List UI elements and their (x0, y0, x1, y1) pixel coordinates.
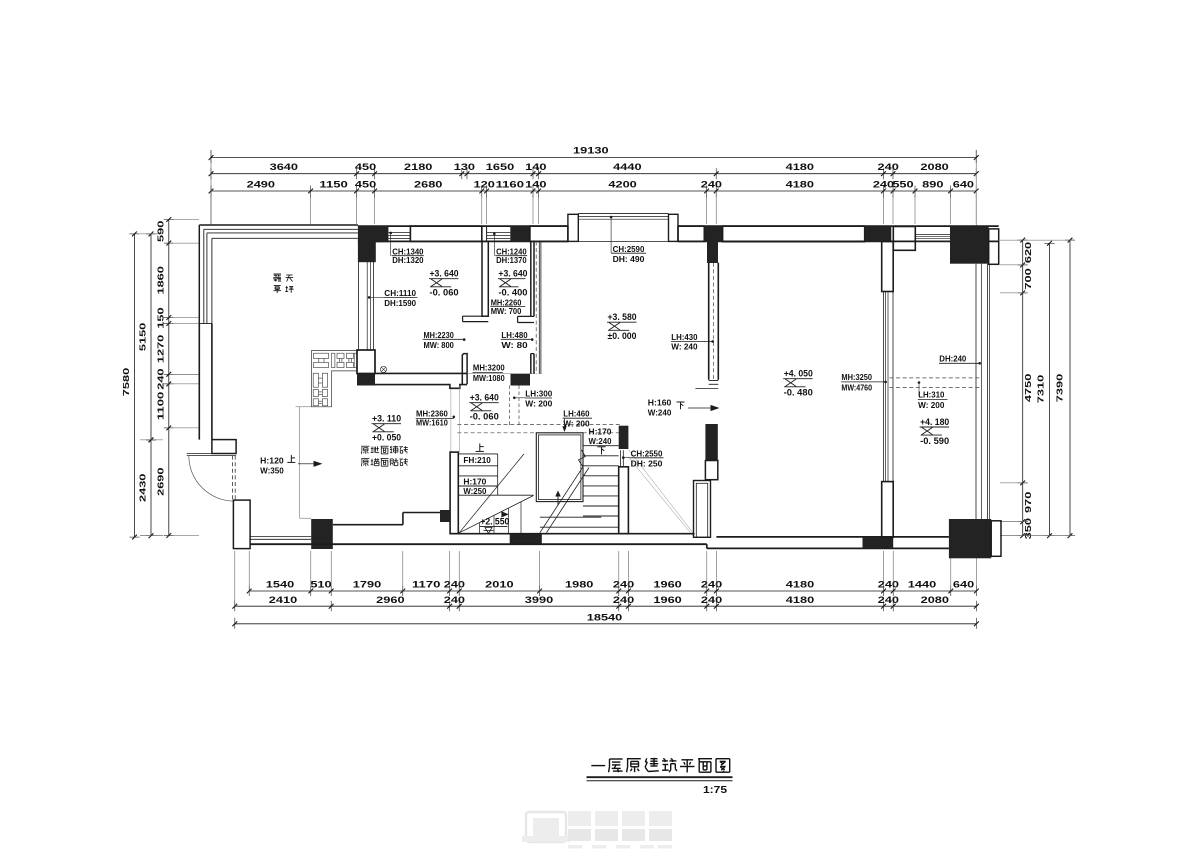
svg-text:18540: 18540 (587, 612, 623, 622)
svg-text:2690: 2690 (155, 467, 165, 496)
svg-text:LH:300: LH:300 (525, 390, 553, 399)
svg-text:640: 640 (953, 180, 974, 190)
svg-text:-0. 480: -0. 480 (784, 388, 813, 398)
svg-text:240: 240 (444, 580, 465, 590)
svg-text:4180: 4180 (786, 595, 814, 605)
svg-text:2080: 2080 (920, 162, 948, 172)
svg-text:2490: 2490 (247, 180, 275, 190)
svg-text:LH:460: LH:460 (563, 410, 590, 419)
svg-text:1170: 1170 (412, 580, 440, 590)
svg-text:2180: 2180 (404, 162, 432, 172)
svg-text:240: 240 (878, 595, 899, 605)
svg-text:+3. 580: +3. 580 (608, 312, 637, 322)
svg-text:130: 130 (454, 162, 475, 172)
svg-text:CH:2590: CH:2590 (613, 245, 645, 254)
svg-text:MH:2230: MH:2230 (424, 331, 455, 340)
svg-text:±0. 000: ±0. 000 (608, 331, 637, 341)
svg-text:450: 450 (355, 180, 376, 190)
svg-text:240: 240 (878, 162, 899, 172)
svg-text:+3. 110: +3. 110 (372, 414, 401, 424)
svg-text:MW: 700: MW: 700 (491, 307, 522, 316)
svg-text:LH:480: LH:480 (501, 331, 528, 340)
svg-text:CH:1340: CH:1340 (392, 248, 424, 257)
svg-text:W:240: W:240 (589, 437, 613, 446)
svg-text:2960: 2960 (376, 595, 404, 605)
svg-text:4440: 4440 (613, 162, 641, 172)
svg-text:DH:1590: DH:1590 (384, 299, 416, 308)
svg-text:1440: 1440 (908, 580, 936, 590)
svg-text:970: 970 (1023, 491, 1033, 513)
svg-text:FH:210: FH:210 (463, 456, 491, 465)
svg-text:+3. 640: +3. 640 (498, 269, 527, 279)
svg-text:-0. 060: -0. 060 (470, 412, 499, 422)
svg-text:2430: 2430 (138, 473, 148, 502)
svg-text:MW: 800: MW: 800 (424, 341, 455, 350)
svg-text:4750: 4750 (1023, 373, 1033, 402)
svg-text:DH:240: DH:240 (939, 355, 967, 364)
svg-text:MH:3200: MH:3200 (473, 364, 505, 373)
svg-text:4180: 4180 (786, 162, 814, 172)
svg-text:1150: 1150 (319, 180, 347, 190)
svg-text:W: 200: W: 200 (525, 400, 553, 409)
svg-text:19130: 19130 (573, 146, 609, 156)
svg-text:1860: 1860 (155, 266, 165, 295)
svg-text:2010: 2010 (485, 580, 513, 590)
svg-text:240: 240 (613, 580, 634, 590)
svg-text:450: 450 (355, 162, 376, 172)
svg-text:CH:2550: CH:2550 (631, 449, 663, 458)
svg-text:7310: 7310 (1036, 374, 1046, 403)
svg-text:890: 890 (922, 180, 943, 190)
svg-text:240: 240 (701, 180, 722, 190)
svg-text:240: 240 (701, 595, 722, 605)
svg-text:2680: 2680 (414, 180, 442, 190)
svg-text:140: 140 (525, 162, 546, 172)
svg-text:MH:2360: MH:2360 (416, 410, 448, 419)
svg-text:120: 120 (474, 180, 495, 190)
svg-text:+4. 050: +4. 050 (784, 369, 813, 379)
svg-text:MW:1080: MW:1080 (473, 374, 505, 383)
svg-text:W: 80: W: 80 (501, 341, 528, 350)
svg-text:DH: 250: DH: 250 (631, 459, 663, 468)
svg-text:MH:3250: MH:3250 (841, 373, 872, 382)
svg-text:+0. 050: +0. 050 (372, 433, 401, 443)
svg-text:W:240: W:240 (648, 408, 672, 417)
svg-text:2080: 2080 (921, 595, 949, 605)
svg-text:240: 240 (878, 580, 899, 590)
svg-text:4180: 4180 (786, 580, 814, 590)
svg-text:7390: 7390 (1055, 373, 1065, 402)
svg-text:1960: 1960 (653, 595, 681, 605)
svg-text:1540: 1540 (266, 580, 294, 590)
svg-text:1160: 1160 (496, 180, 524, 190)
svg-text:W: 200: W: 200 (918, 401, 945, 410)
svg-text:4180: 4180 (786, 180, 814, 190)
svg-text:+3. 640: +3. 640 (430, 269, 459, 279)
svg-text:H:170: H:170 (589, 427, 613, 436)
svg-text:240: 240 (701, 580, 722, 590)
svg-text:550: 550 (892, 180, 913, 190)
svg-text:CH:1240: CH:1240 (496, 248, 527, 257)
svg-text:1790: 1790 (353, 580, 381, 590)
svg-text:7580: 7580 (121, 367, 131, 396)
svg-text:1960: 1960 (653, 580, 681, 590)
svg-text:H:120: H:120 (260, 457, 284, 466)
svg-text:+4. 180: +4. 180 (920, 417, 949, 427)
svg-text:4200: 4200 (608, 180, 636, 190)
svg-text:LH:430: LH:430 (671, 333, 698, 342)
svg-text:+3. 640: +3. 640 (470, 393, 499, 403)
svg-text:H:170: H:170 (463, 477, 487, 486)
svg-text:140: 140 (525, 180, 546, 190)
svg-text:640: 640 (953, 580, 974, 590)
svg-text:350: 350 (1023, 518, 1033, 540)
svg-text:-0. 590: -0. 590 (920, 436, 949, 446)
svg-text:1270: 1270 (155, 334, 165, 363)
svg-text:150: 150 (155, 307, 165, 329)
svg-text:DH:1320: DH:1320 (392, 256, 424, 265)
svg-text:700: 700 (1023, 268, 1033, 290)
svg-text:-0. 400: -0. 400 (498, 288, 527, 298)
svg-text:W:250: W:250 (463, 487, 487, 496)
svg-text:W: 200: W: 200 (563, 419, 590, 428)
svg-text:MW:4760: MW:4760 (841, 383, 872, 392)
svg-text:3640: 3640 (270, 162, 298, 172)
svg-text:1100: 1100 (155, 391, 165, 420)
svg-text:240: 240 (613, 595, 634, 605)
svg-text:1980: 1980 (565, 580, 593, 590)
svg-text:510: 510 (310, 580, 331, 590)
svg-text:+2. 550: +2. 550 (480, 517, 509, 527)
svg-text:240: 240 (444, 595, 465, 605)
svg-text:W: 240: W: 240 (671, 342, 698, 351)
svg-text:1650: 1650 (486, 162, 514, 172)
svg-text:MW:1610: MW:1610 (416, 419, 448, 428)
svg-text:5150: 5150 (138, 322, 148, 351)
svg-text:620: 620 (1023, 242, 1033, 264)
svg-text:3990: 3990 (525, 595, 553, 605)
svg-text:2410: 2410 (269, 595, 297, 605)
svg-text:240: 240 (155, 368, 165, 390)
svg-text:W:350: W:350 (260, 466, 284, 475)
svg-text:CH:1110: CH:1110 (384, 289, 416, 298)
svg-text:DH:1370: DH:1370 (496, 256, 527, 265)
svg-text:DH: 490: DH: 490 (613, 255, 645, 264)
svg-text:LH:310: LH:310 (918, 390, 945, 399)
svg-text:-0. 060: -0. 060 (430, 288, 459, 298)
svg-text:590: 590 (155, 220, 165, 242)
svg-text:1:75: 1:75 (703, 785, 728, 796)
svg-text:H:160: H:160 (648, 399, 672, 408)
